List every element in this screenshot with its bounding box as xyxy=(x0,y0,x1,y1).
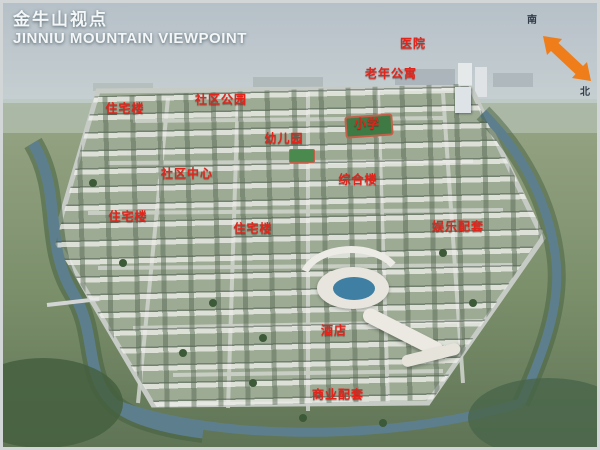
compass-north-label: 北 xyxy=(580,83,590,98)
aerial-masterplan-view: 南 北 金牛山视点 JINNIU MOUNTAIN VIEWPOINT 医院老年… xyxy=(0,0,600,450)
office-tower xyxy=(455,87,471,113)
map-label-entertainment: 娱乐配套 xyxy=(432,218,484,235)
map-label-hospital: 医院 xyxy=(400,35,426,52)
map-label-kindergarten: 幼儿园 xyxy=(264,130,303,147)
map-label-primary-school: 小学 xyxy=(354,115,380,132)
plaza-pool xyxy=(333,277,375,300)
title-chinese: 金牛山视点 xyxy=(13,9,247,30)
map-label-residential-2: 住宅楼 xyxy=(108,208,147,225)
map-label-residential-1: 住宅楼 xyxy=(105,100,144,117)
map-label-hotel: 酒店 xyxy=(321,322,347,339)
map-label-complex-building: 综合楼 xyxy=(338,171,377,188)
map-label-senior-apartments: 老年公寓 xyxy=(365,65,417,82)
page-title: 金牛山视点 JINNIU MOUNTAIN VIEWPOINT xyxy=(13,9,247,49)
map-label-residential-3: 住宅楼 xyxy=(233,220,272,237)
map-label-community-park: 社区公园 xyxy=(195,91,247,108)
kindergarten-yard xyxy=(289,149,315,163)
map-label-commercial: 商业配套 xyxy=(312,386,364,403)
map-label-community-center: 社区中心 xyxy=(161,165,213,182)
title-english: JINNIU MOUNTAIN VIEWPOINT xyxy=(13,30,247,49)
compass-south-label: 南 xyxy=(527,11,537,26)
